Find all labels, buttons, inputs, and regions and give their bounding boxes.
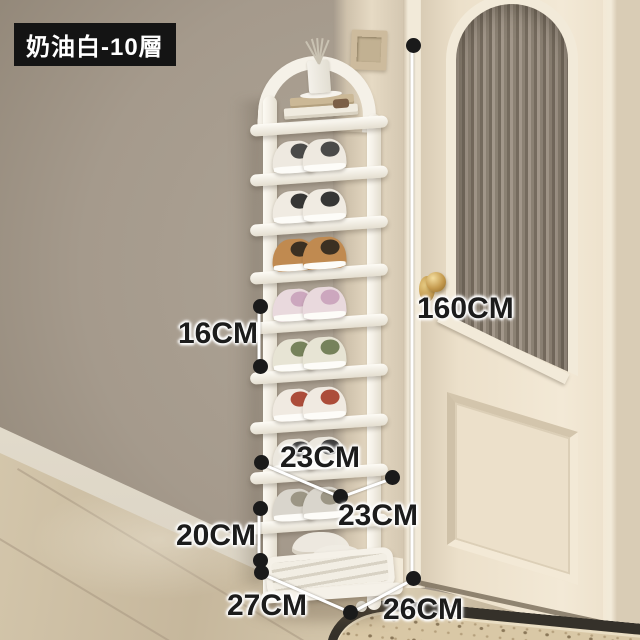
label-base-height: 20CM xyxy=(148,519,256,553)
label-base-depth: 26CM xyxy=(383,593,463,627)
measure-dot xyxy=(406,38,421,53)
shoe-accent xyxy=(320,140,339,157)
measure-dot xyxy=(253,359,268,374)
decor-trinket xyxy=(333,98,350,108)
light-switch xyxy=(350,29,387,70)
rack-right-rail xyxy=(367,114,381,610)
measure-dot xyxy=(254,455,269,470)
label-total-height: 160CM xyxy=(417,292,514,326)
label-shelf-width: 23CM xyxy=(338,499,418,533)
variant-badge: 奶油白-10層 xyxy=(14,23,176,66)
measure-dot xyxy=(385,470,400,485)
door-knob xyxy=(426,272,446,292)
light-switch-button xyxy=(357,37,382,63)
label-tier-height: 16CM xyxy=(150,317,258,351)
product-photo-shoe-rack: 16CM 160CM 23CM 23CM 20CM 27CM 26CM 奶油白-… xyxy=(0,0,640,640)
measure-dot xyxy=(253,501,268,516)
shoe-accent xyxy=(320,238,339,255)
shoe-accent xyxy=(320,338,339,355)
shoe-accent xyxy=(320,388,339,405)
shoe-accent xyxy=(320,288,339,305)
shoe-accent xyxy=(320,190,339,207)
measure-dot xyxy=(254,565,269,580)
door-jamb xyxy=(603,0,640,640)
label-base-width: 27CM xyxy=(227,589,307,623)
measure-dot xyxy=(406,571,421,586)
measure-dot xyxy=(343,605,358,620)
measure-dot xyxy=(253,299,268,314)
label-shelf-depth: 23CM xyxy=(280,441,360,475)
